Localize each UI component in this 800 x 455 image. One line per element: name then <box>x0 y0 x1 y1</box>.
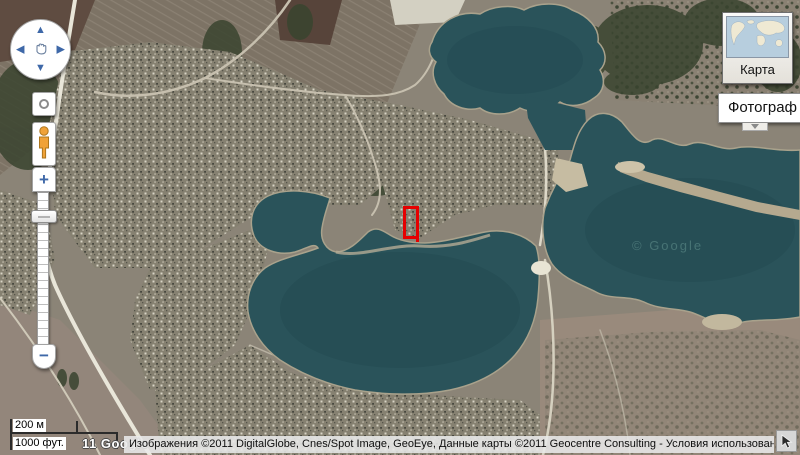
scale-bracket <box>10 419 12 450</box>
reset-view-button[interactable] <box>32 92 56 116</box>
map-type-label: Карта <box>726 62 789 77</box>
zoom-slider-handle[interactable] <box>31 210 57 223</box>
chevron-down-icon <box>751 124 759 129</box>
scale-bracket <box>76 421 78 434</box>
circle-ring-icon <box>39 99 49 109</box>
world-map-thumbnail-icon <box>726 16 789 58</box>
street-view-pegman-button[interactable] <box>32 122 56 166</box>
photo-type-label: Фотограф <box>728 99 797 116</box>
scale-metric-label: 200 м <box>13 419 46 432</box>
pan-left-icon[interactable]: ◀ <box>16 44 24 55</box>
map-application-window: © Google ▲ ▼ ◀ ▶ + − <box>0 0 800 455</box>
pan-control[interactable]: ▲ ▼ ◀ ▶ <box>10 19 71 80</box>
cursor-indicator <box>776 430 797 452</box>
imagery-watermark: © Google <box>632 238 703 253</box>
terms-of-use-link[interactable]: Условия использования <box>666 438 774 450</box>
zoom-out-button[interactable]: − <box>32 344 56 369</box>
pegman-icon <box>36 126 52 162</box>
pan-up-icon[interactable]: ▲ <box>35 25 46 36</box>
pan-right-icon[interactable]: ▶ <box>57 44 65 55</box>
pan-down-icon[interactable]: ▼ <box>35 63 46 74</box>
pan-hand-icon[interactable] <box>33 39 49 60</box>
satellite-map-canvas[interactable]: © Google <box>0 0 800 455</box>
map-type-button[interactable]: Карта <box>722 12 793 84</box>
map-type-collapse-tab[interactable] <box>742 123 768 131</box>
scale-bracket <box>10 432 118 434</box>
selection-marker[interactable] <box>403 206 419 239</box>
scale-imperial-label: 1000 фут. <box>13 437 66 450</box>
photo-type-button[interactable]: Фотограф <box>718 93 800 123</box>
nw-arrow-icon <box>780 434 793 449</box>
zoom-in-button[interactable]: + <box>32 167 56 192</box>
attribution-bar: Изображения ©2011 DigitalGlobe, Cnes/Spo… <box>124 436 774 453</box>
attribution-text: Изображения ©2011 DigitalGlobe, Cnes/Spo… <box>129 438 666 450</box>
